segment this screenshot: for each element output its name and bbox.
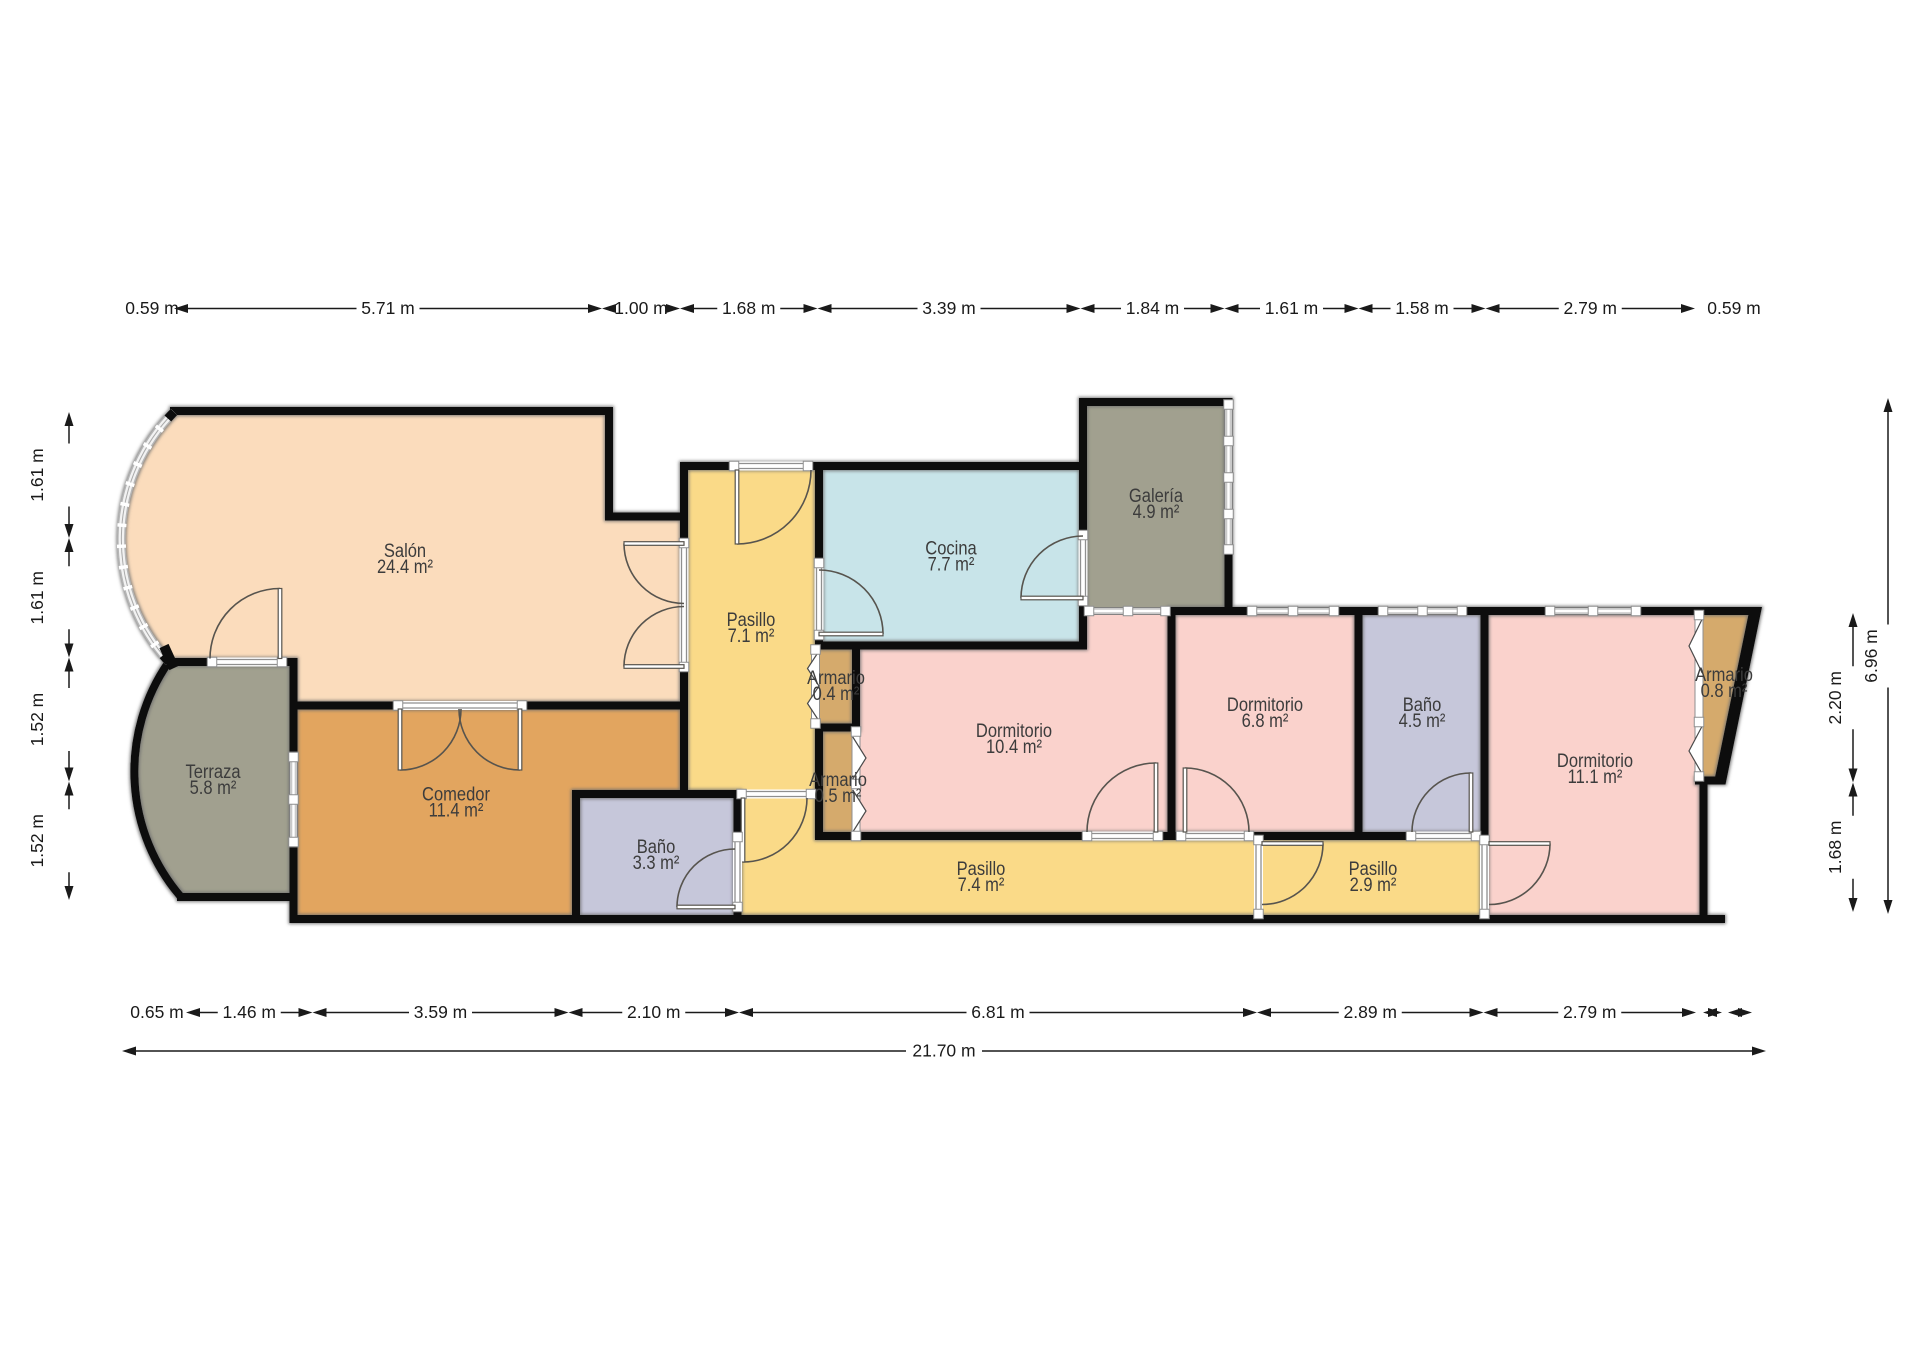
svg-text:2.9 m²: 2.9 m²	[1350, 874, 1397, 895]
svg-text:0.59 m: 0.59 m	[1707, 298, 1761, 318]
svg-text:0.4 m²: 0.4 m²	[813, 683, 860, 704]
svg-text:7.7 m²: 7.7 m²	[928, 553, 975, 574]
svg-text:2.89 m: 2.89 m	[1344, 1002, 1398, 1022]
svg-text:1.46 m: 1.46 m	[223, 1002, 277, 1022]
svg-text:4.5 m²: 4.5 m²	[1399, 710, 1446, 731]
svg-text:1.52 m: 1.52 m	[27, 814, 47, 868]
svg-text:1.84 m: 1.84 m	[1126, 298, 1180, 318]
svg-text:1.00 m: 1.00 m	[614, 298, 668, 318]
svg-text:24.4 m²: 24.4 m²	[377, 556, 433, 577]
svg-text:1.61 m: 1.61 m	[27, 571, 47, 625]
svg-text:21.70 m: 21.70 m	[912, 1041, 975, 1061]
svg-text:1.58 m: 1.58 m	[1395, 298, 1449, 318]
svg-text:2.20 m: 2.20 m	[1825, 671, 1845, 725]
svg-text:3.59 m: 3.59 m	[414, 1002, 468, 1022]
svg-text:11.1 m²: 11.1 m²	[1568, 766, 1623, 787]
svg-text:0.5 m²: 0.5 m²	[815, 785, 862, 806]
svg-text:1.61 m: 1.61 m	[1265, 298, 1319, 318]
svg-text:3.3 m²: 3.3 m²	[633, 852, 680, 873]
svg-text:6.8 m²: 6.8 m²	[1242, 710, 1289, 731]
svg-text:1.61 m: 1.61 m	[27, 448, 47, 502]
svg-text:1.68 m: 1.68 m	[1825, 821, 1845, 875]
svg-text:7.1 m²: 7.1 m²	[728, 625, 775, 646]
svg-text:0.65 m: 0.65 m	[130, 1002, 184, 1022]
svg-text:11.4 m²: 11.4 m²	[429, 799, 484, 820]
svg-text:6.81 m: 6.81 m	[971, 1002, 1025, 1022]
svg-text:3.39 m: 3.39 m	[922, 298, 976, 318]
svg-text:0.59 m: 0.59 m	[125, 298, 179, 318]
svg-text:0.8 m²: 0.8 m²	[1701, 680, 1748, 701]
svg-text:7.4 m²: 7.4 m²	[958, 874, 1005, 895]
svg-text:5.71 m: 5.71 m	[361, 298, 415, 318]
svg-text:4.9 m²: 4.9 m²	[1133, 501, 1180, 522]
svg-text:5.8 m²: 5.8 m²	[190, 777, 237, 798]
svg-text:2.79 m: 2.79 m	[1563, 1002, 1617, 1022]
svg-text:1.52 m: 1.52 m	[27, 693, 47, 747]
svg-text:1.68 m: 1.68 m	[722, 298, 776, 318]
svg-text:10.4 m²: 10.4 m²	[986, 736, 1042, 757]
svg-text:2.10 m: 2.10 m	[627, 1002, 681, 1022]
svg-text:2.79 m: 2.79 m	[1564, 298, 1618, 318]
svg-text:6.96 m: 6.96 m	[1861, 629, 1881, 683]
